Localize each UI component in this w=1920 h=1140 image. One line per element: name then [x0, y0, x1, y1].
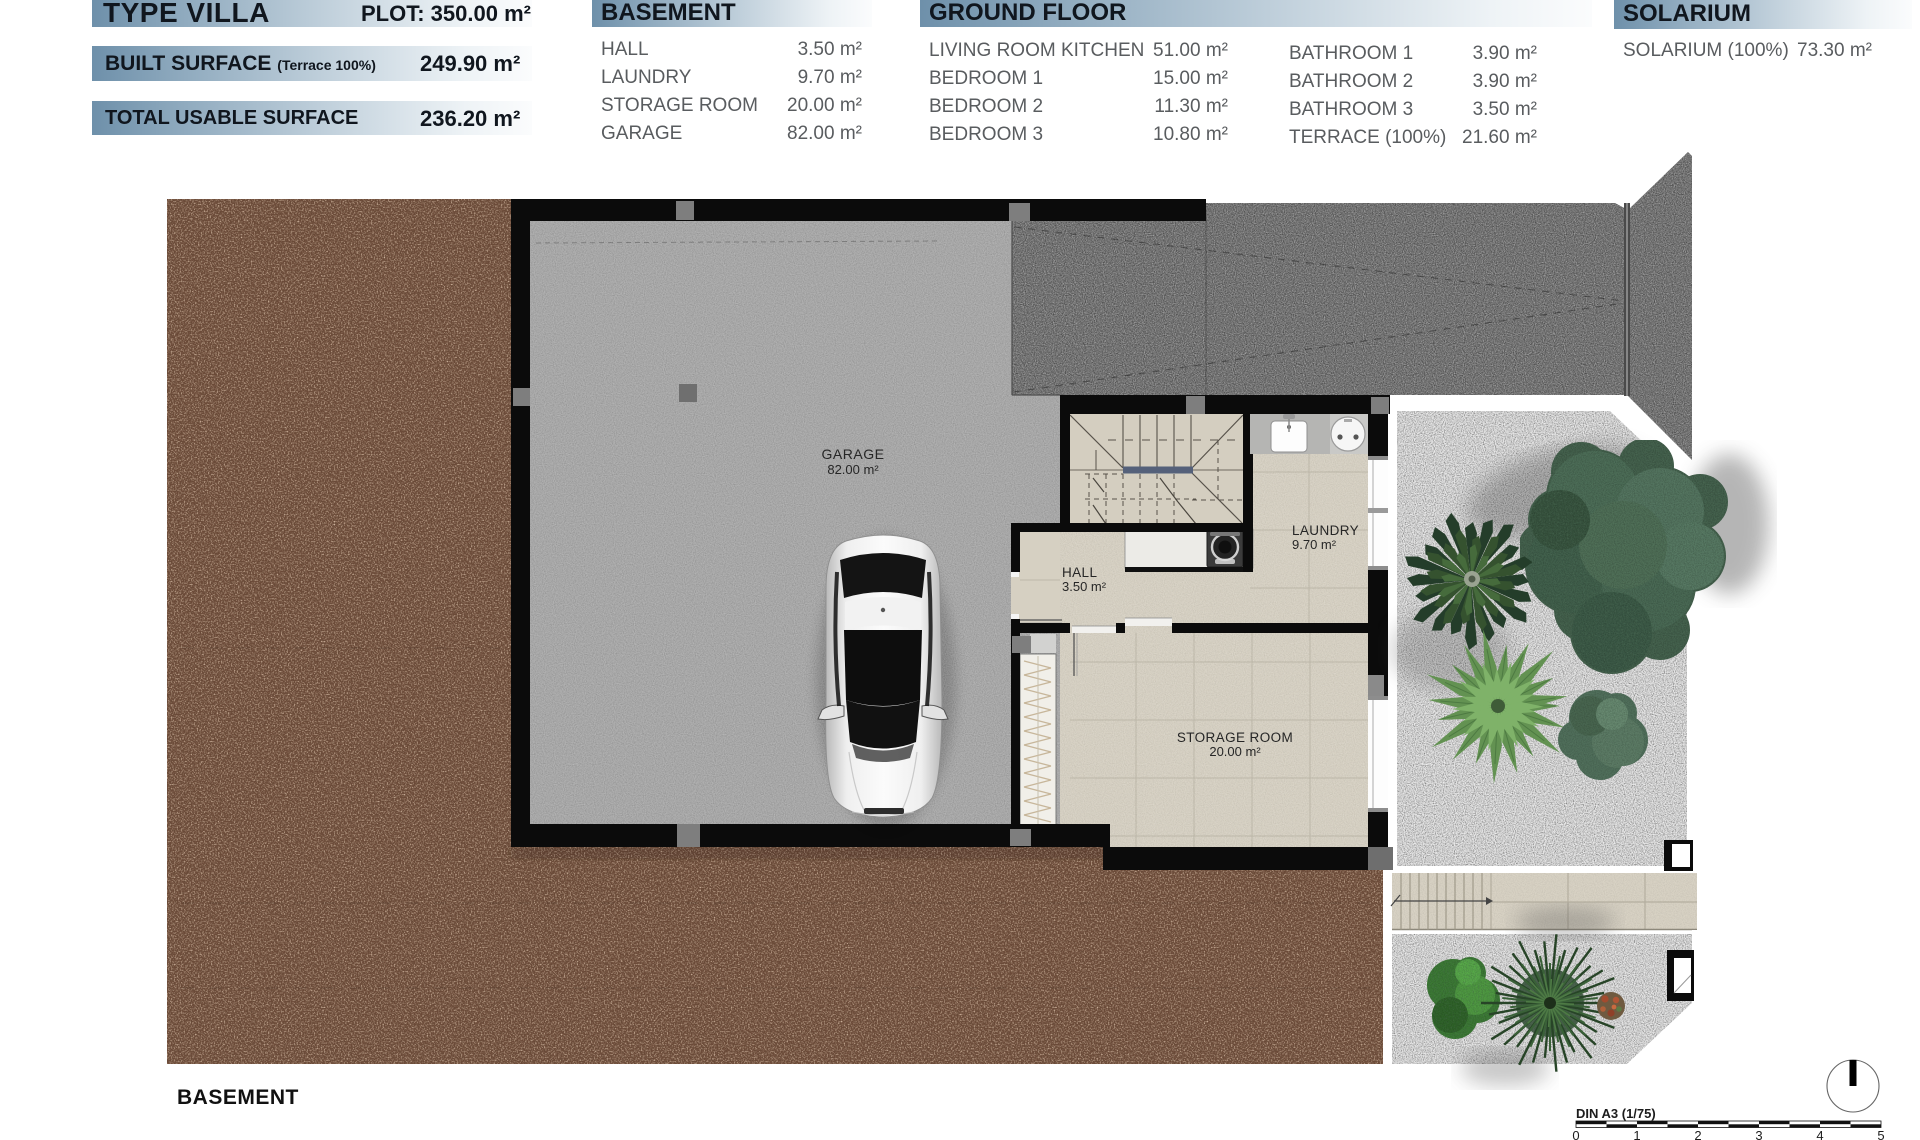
svg-text:2: 2 — [1694, 1128, 1701, 1140]
svg-text:3: 3 — [1755, 1128, 1762, 1140]
svg-text:4: 4 — [1816, 1128, 1823, 1140]
svg-text:9.70 m²: 9.70 m² — [1292, 537, 1337, 552]
svg-text:STORAGE ROOM: STORAGE ROOM — [1177, 730, 1293, 745]
svg-text:20.00 m²: 20.00 m² — [1209, 744, 1261, 759]
svg-text:3.50 m²: 3.50 m² — [1062, 579, 1107, 594]
svg-text:82.00 m²: 82.00 m² — [827, 462, 879, 477]
svg-text:LAUNDRY: LAUNDRY — [1292, 523, 1359, 538]
svg-text:GARAGE: GARAGE — [822, 446, 885, 462]
svg-text:0: 0 — [1572, 1128, 1579, 1140]
svg-text:5: 5 — [1877, 1128, 1884, 1140]
svg-text:1: 1 — [1633, 1128, 1640, 1140]
svg-text:HALL: HALL — [1062, 565, 1097, 580]
svg-text:DIN A3 (1/75): DIN A3 (1/75) — [1576, 1106, 1656, 1121]
